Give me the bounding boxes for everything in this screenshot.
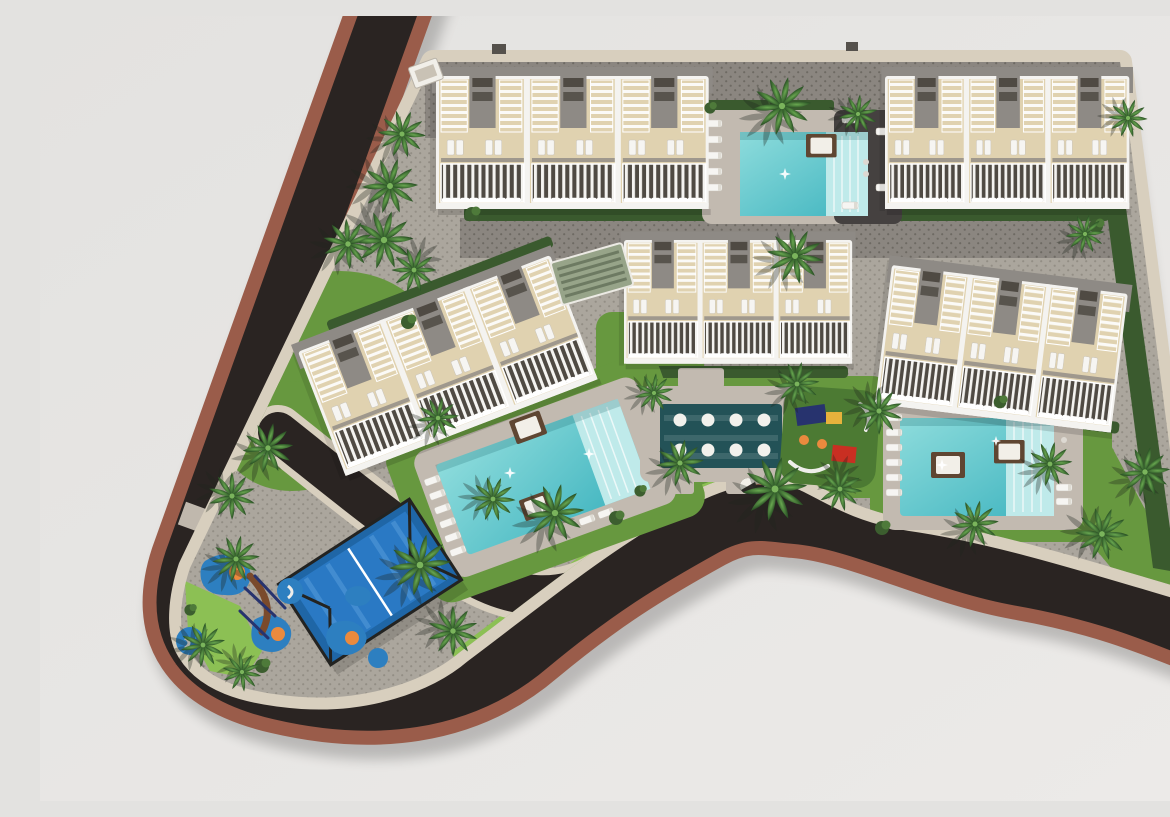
rubber-pad: [277, 578, 303, 604]
cabana-daybed: [994, 440, 1025, 463]
render-canvas: [40, 16, 1170, 801]
sun-lounger: [886, 444, 902, 451]
apartment-building: [880, 67, 1133, 215]
in-water-lounger: [702, 444, 715, 457]
in-water-lounger: [730, 444, 743, 457]
sun-lounger: [1056, 484, 1072, 491]
spa-deck-tab: [678, 368, 724, 388]
in-water-lounger: [758, 414, 771, 427]
apartment-building: [619, 232, 856, 370]
rubber-ring: [271, 627, 285, 641]
sun-lounger: [886, 459, 902, 466]
side-table: [863, 159, 869, 165]
utility-box: [846, 42, 858, 51]
side-table: [1061, 437, 1067, 443]
sun-lounger: [842, 202, 858, 209]
site-plan-render: Aerial 3D site-plan render of a resident…: [40, 16, 1170, 801]
spring-seat: [817, 439, 827, 449]
apartment-building: [869, 255, 1133, 439]
pool-area-top: [702, 110, 902, 224]
cabana-daybed: [806, 134, 837, 157]
sun-lounger: [1056, 498, 1072, 505]
rubber-pad: [368, 648, 388, 668]
side-table: [863, 171, 869, 177]
sun-lounger: [886, 489, 902, 496]
rubber-ring: [345, 631, 359, 645]
utility-box: [492, 44, 506, 54]
rubber-pad: [345, 586, 371, 606]
apartment-building: [430, 67, 713, 215]
in-water-lounger: [730, 414, 743, 427]
in-water-lounger: [674, 414, 687, 427]
play-equipment: [826, 412, 842, 424]
sun-lounger: [886, 429, 902, 436]
spring-seat: [799, 435, 809, 445]
in-water-lounger: [702, 414, 715, 427]
in-water-lounger: [758, 444, 771, 457]
sun-lounger: [886, 474, 902, 481]
